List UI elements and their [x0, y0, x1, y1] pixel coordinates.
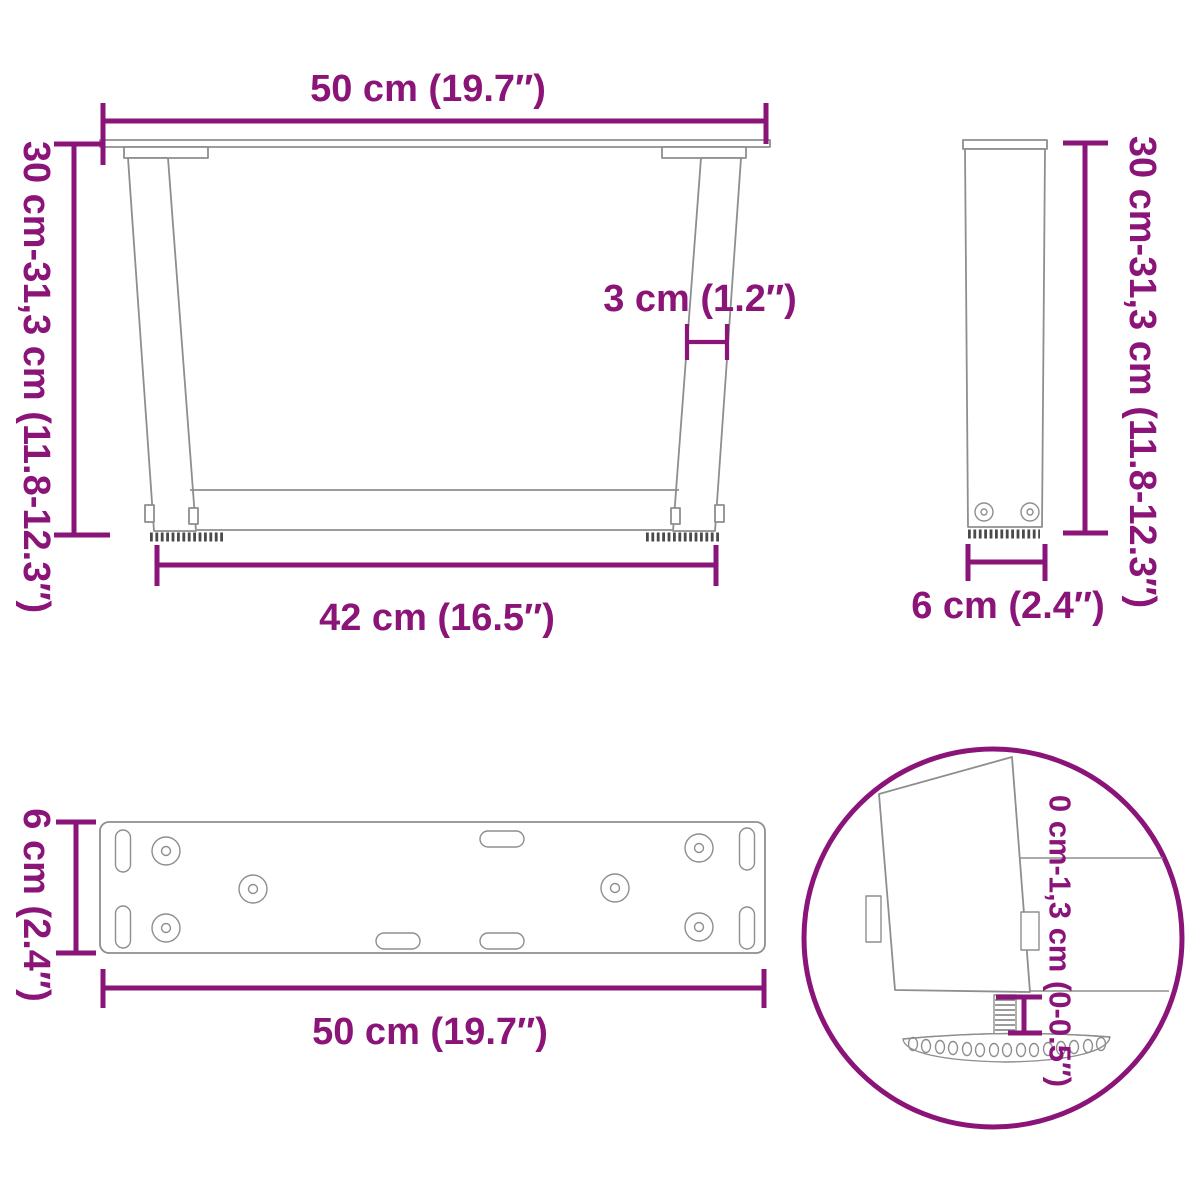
- side-top-cap: [963, 140, 1047, 149]
- side-screw-right-center: [1027, 509, 1033, 515]
- detail-leg-section: [879, 757, 1030, 992]
- plate-slot-bottom-right: [740, 907, 755, 949]
- detail-adjustment-label: 0 cm-1,3 cm (0-0.5″): [1043, 795, 1078, 1087]
- front-right-foot-tab-outer: [715, 505, 724, 522]
- front-thickness-label: 3 cm (1.2″): [603, 278, 797, 320]
- front-left-foot-tab-inner: [189, 508, 198, 524]
- plate-depth-dimension: [56, 822, 96, 953]
- front-left-mount-plate: [124, 147, 208, 158]
- plate-depth-label: 6 cm (2.4″): [15, 808, 57, 1002]
- front-left-leg: [128, 158, 196, 531]
- front-left-foot-tab-outer: [145, 505, 154, 522]
- front-bottom-width-label: 42 cm (16.5″): [319, 597, 555, 639]
- plate-outline: [100, 822, 765, 953]
- detail-thread: [994, 995, 1016, 1035]
- plate-width-label: 50 cm (19.7″): [312, 1011, 548, 1053]
- plate-line-art: [100, 822, 765, 953]
- plate-width-dimension: [103, 969, 764, 1008]
- plate-slot-bottom-center-2: [480, 933, 524, 949]
- plate-slot-top-center: [480, 831, 524, 847]
- front-right-mount-plate: [662, 147, 746, 158]
- side-screw-left-center: [981, 509, 987, 515]
- front-top-width-label: 50 cm (19.7″): [310, 68, 546, 110]
- plate-slot-top-right: [740, 828, 755, 870]
- front-right-leg: [673, 158, 741, 531]
- detail-left-tab: [866, 896, 881, 942]
- plate-view: 6 cm (2.4″) 50 cm (19.7″): [15, 808, 765, 1053]
- plate-slot-top-left: [116, 830, 131, 872]
- front-height-dimension: [54, 144, 110, 535]
- front-view-line-art: [100, 140, 770, 537]
- front-right-foot-tab-inner: [671, 508, 680, 524]
- plate-slot-bottom-left: [116, 906, 131, 948]
- side-height-label: 30 cm-31,3 cm (11.8-12.3″): [1121, 136, 1163, 608]
- plate-slot-bottom-center-1: [376, 933, 420, 949]
- side-leg-body: [965, 149, 1045, 527]
- front-bottom-width-dimension: [157, 545, 716, 586]
- diagram-canvas: 50 cm (19.7″) 30 cm-31,3 cm (11.8-12.3″)…: [0, 0, 1200, 1200]
- side-depth-dimension: [968, 544, 1045, 581]
- front-tabletop: [100, 140, 770, 147]
- side-view-line-art: [963, 140, 1047, 534]
- front-view: 50 cm (19.7″) 30 cm-31,3 cm (11.8-12.3″)…: [15, 68, 797, 639]
- side-depth-label: 6 cm (2.4″): [911, 585, 1105, 627]
- detail-right-tab: [1021, 912, 1039, 950]
- diagram-page: 50 cm (19.7″) 30 cm-31,3 cm (11.8-12.3″)…: [0, 0, 1200, 1200]
- side-height-dimension: [1063, 143, 1108, 533]
- detail-view: 0 cm-1,3 cm (0-0.5″): [804, 749, 1182, 1127]
- front-height-label: 30 cm-31,3 cm (11.8-12.3″): [15, 141, 57, 613]
- side-view: 30 cm-31,3 cm (11.8-12.3″) 6 cm (2.4″): [911, 136, 1163, 627]
